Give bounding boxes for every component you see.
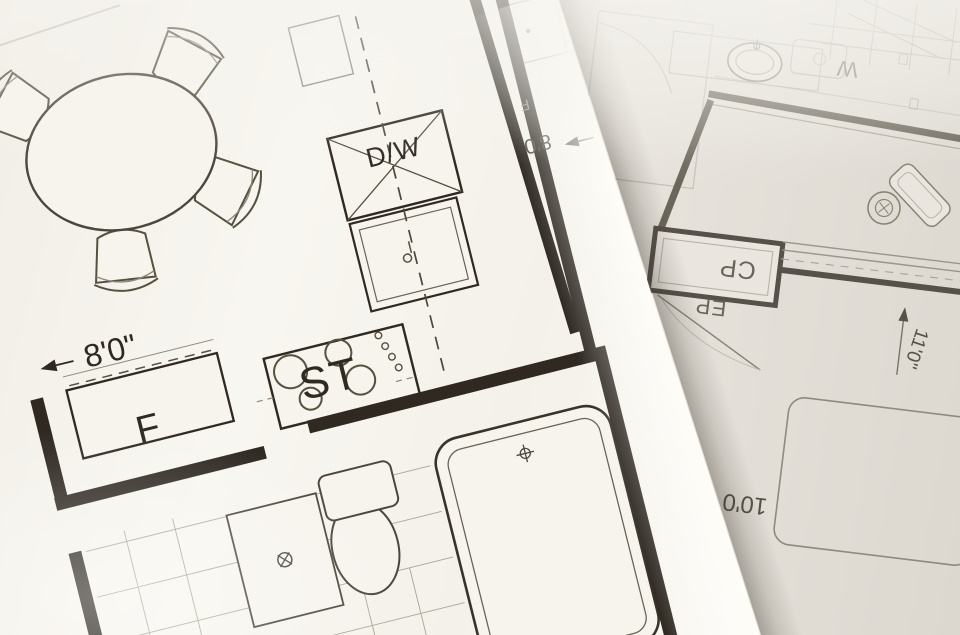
grid-line — [869, 0, 877, 65]
dim-11ft-label: 11'0" — [899, 326, 932, 371]
dim-11ft: 11'0" — [892, 307, 935, 379]
band-wall — [778, 269, 960, 292]
dim-line — [897, 315, 904, 375]
chair-seat — [91, 227, 156, 283]
left-wall-upper — [37, 399, 64, 506]
top-wall-inner-line — [708, 104, 960, 149]
tiny-mark — [899, 54, 908, 65]
closet-band — [778, 242, 960, 293]
toilet-circles — [866, 190, 902, 226]
dining-set — [0, 6, 289, 321]
tile-line — [410, 568, 443, 635]
faint-corner-line — [0, 5, 122, 45]
dim-kitchen-label: 8'0" — [80, 327, 140, 375]
left-wall-lower — [75, 552, 112, 635]
tile-line — [173, 519, 231, 635]
dim-arrowhead — [898, 307, 910, 322]
washer-label: W — [836, 55, 860, 82]
blueprint-photo: W CP EP — [0, 0, 960, 635]
sink-outer — [726, 40, 784, 84]
fixture-knob — [813, 52, 826, 65]
dim-arrowhead — [39, 359, 57, 375]
chair-s — [89, 227, 159, 294]
wall-faint-line — [714, 76, 960, 115]
tiny-annotation-marks — [893, 54, 923, 110]
toilet-tank — [317, 460, 400, 523]
bedroom-rug — [772, 396, 960, 567]
dim-line — [56, 361, 73, 365]
bathroom-top-wall — [56, 452, 266, 504]
top-wall — [707, 94, 960, 139]
grid-line — [830, 0, 838, 60]
toilet-cross — [878, 202, 889, 213]
closet-cp-label: CP — [718, 252, 758, 284]
grid-lines — [805, 0, 960, 80]
wall-cabinet — [288, 15, 353, 86]
